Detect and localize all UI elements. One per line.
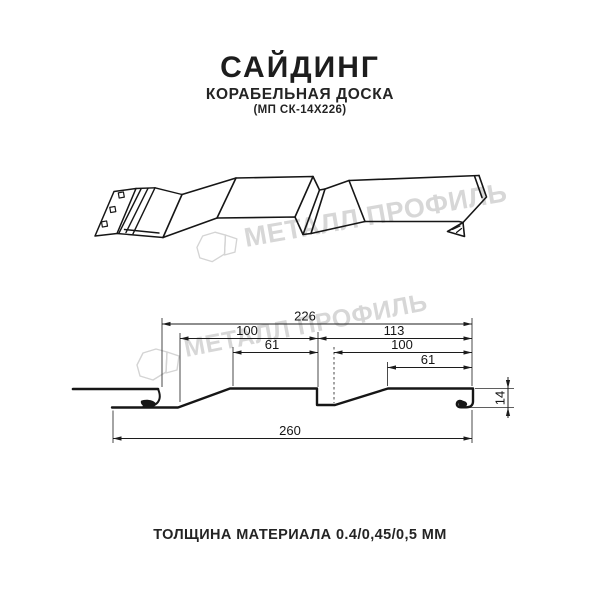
product-code: (МП СК-14Х226) xyxy=(0,104,600,116)
watermark-logo-icon xyxy=(137,349,179,380)
thickness-note: ТОЛЩИНА МАТЕРИАЛА 0.4/0,45/0,5 ММ xyxy=(0,527,600,543)
profile-3d-drawing: МЕТАЛЛ ПРОФИЛЬ xyxy=(0,148,600,278)
main-profile-path xyxy=(112,389,473,408)
dimension-arrows xyxy=(113,322,510,441)
dim-61-left-label: 61 xyxy=(265,337,279,352)
dim-100-left-label: 100 xyxy=(236,323,258,338)
page-title: САЙДИНГ xyxy=(0,51,600,85)
cross-section-drawing: МЕТАЛЛ ПРОФИЛЬ xyxy=(0,290,600,465)
product-subtitle: КОРАБЕЛЬНАЯ ДОСКА xyxy=(0,86,600,104)
watermark-logo-icon xyxy=(197,232,237,261)
dim-226-label: 226 xyxy=(294,309,316,324)
dim-113-label: 113 xyxy=(384,323,405,338)
product-drawing-page: САЙДИНГ КОРАБЕЛЬНАЯ ДОСКА (МП СК-14Х226)… xyxy=(0,0,600,600)
dim-14-label: 14 xyxy=(493,391,508,405)
lock-hem-fold xyxy=(117,188,182,238)
dimension-lines xyxy=(113,324,508,439)
dim-100-right-label: 100 xyxy=(391,337,413,352)
dim-61-right-label: 61 xyxy=(421,352,435,367)
profile-outline xyxy=(73,389,473,408)
dim-260-label: 260 xyxy=(279,423,301,438)
